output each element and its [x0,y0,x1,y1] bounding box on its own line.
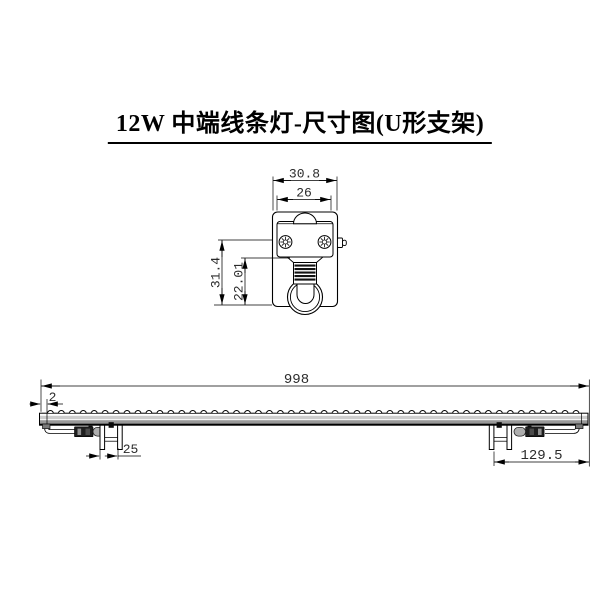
dim-length-label: 998 [284,372,309,388]
dim-end-cap-label: 2 [49,390,57,405]
u-bracket-right [489,422,511,449]
dim-right-offset: 129.5 [494,448,589,466]
side-latch-tab [338,238,347,248]
lamp-band-light [40,416,588,419]
dim-outer-width-label: 30.8 [289,167,320,182]
dim-inner-width-label: 26 [296,186,312,201]
connector-cap-right [514,427,526,436]
dimension-drawing: 30.8 26 31.4 [0,0,600,600]
right-cable-connector [514,424,583,437]
dim-inner-height-label: 22.01 [232,262,247,301]
u-bracket-left [100,422,122,449]
bracket-screw-right [497,422,502,428]
side-view: 998 2 25 [30,372,590,467]
screw-left-icon [279,236,292,249]
left-cable-connector [43,424,105,437]
threaded-stem [294,263,317,285]
cable-gland-left [43,424,51,429]
cable-gland-right [576,424,584,429]
screw-right-icon [318,236,331,249]
connector-body-left [75,427,94,437]
dim-bracket-gap: 25 [86,442,141,459]
dim-bracket-gap-label: 25 [123,442,139,457]
hook-opening [297,284,314,304]
bracket-funnel [287,257,323,263]
dim-inner-width: 26 [277,186,331,211]
drawing-canvas: 12W 中端线条灯-尺寸图(U形支架) [0,0,600,600]
dim-height-label: 31.4 [209,257,224,288]
lamp-band-dark [40,420,588,423]
bracket-screw-left [109,422,114,428]
led-lens-bumps [45,406,582,413]
dim-right-offset-label: 129.5 [520,448,562,464]
detail-view: 30.8 26 31.4 [209,167,347,315]
